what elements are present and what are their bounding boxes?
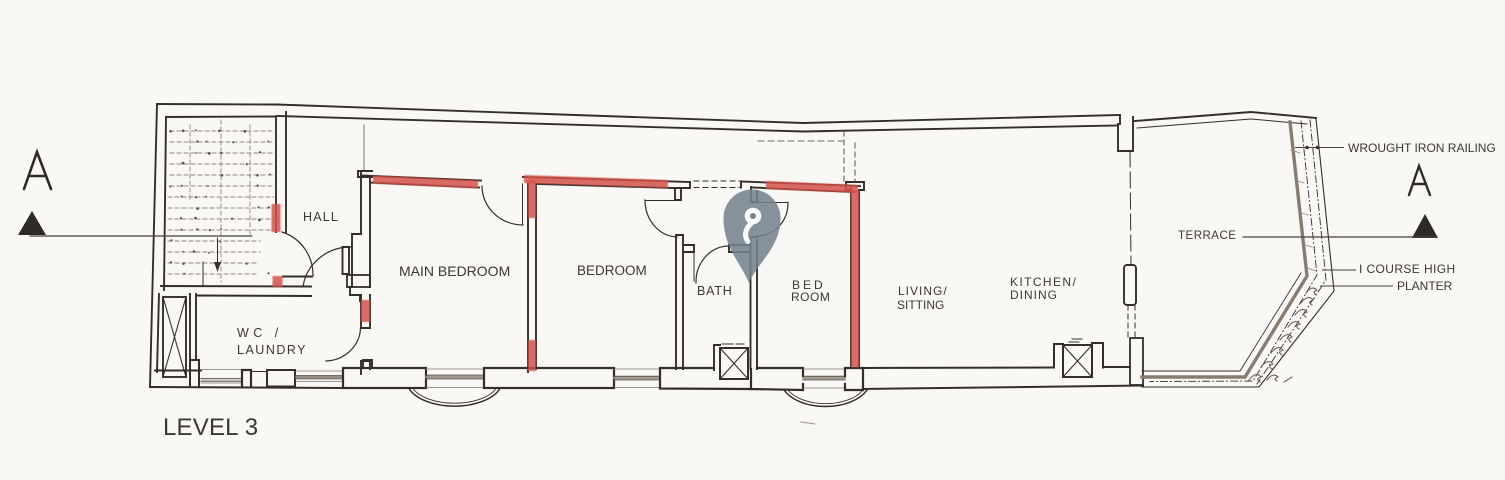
- svg-text:BEDROOM: BEDROOM: [577, 263, 647, 278]
- svg-text:WC /: WC /: [237, 326, 283, 340]
- svg-text:KITCHEN/: KITCHEN/: [1010, 275, 1077, 289]
- svg-text:LAUNDRY: LAUNDRY: [237, 343, 307, 357]
- svg-text:BATH: BATH: [697, 284, 733, 298]
- svg-text:WROUGHT IRON RAILING: WROUGHT IRON RAILING: [1348, 141, 1496, 155]
- svg-text:I COURSE HIGH: I COURSE HIGH: [1359, 262, 1456, 276]
- svg-text:ROOM: ROOM: [791, 290, 830, 304]
- svg-text:PLANTER: PLANTER: [1397, 279, 1453, 293]
- svg-text:LEVEL 3: LEVEL 3: [163, 414, 258, 441]
- svg-text:DINING: DINING: [1010, 288, 1058, 302]
- svg-text:SITTING: SITTING: [897, 298, 944, 312]
- svg-text:MAIN BEDROOM: MAIN BEDROOM: [399, 263, 510, 279]
- svg-text:LIVING/: LIVING/: [898, 284, 948, 298]
- svg-text:TERRACE: TERRACE: [1178, 230, 1236, 242]
- svg-text:HALL: HALL: [303, 210, 339, 224]
